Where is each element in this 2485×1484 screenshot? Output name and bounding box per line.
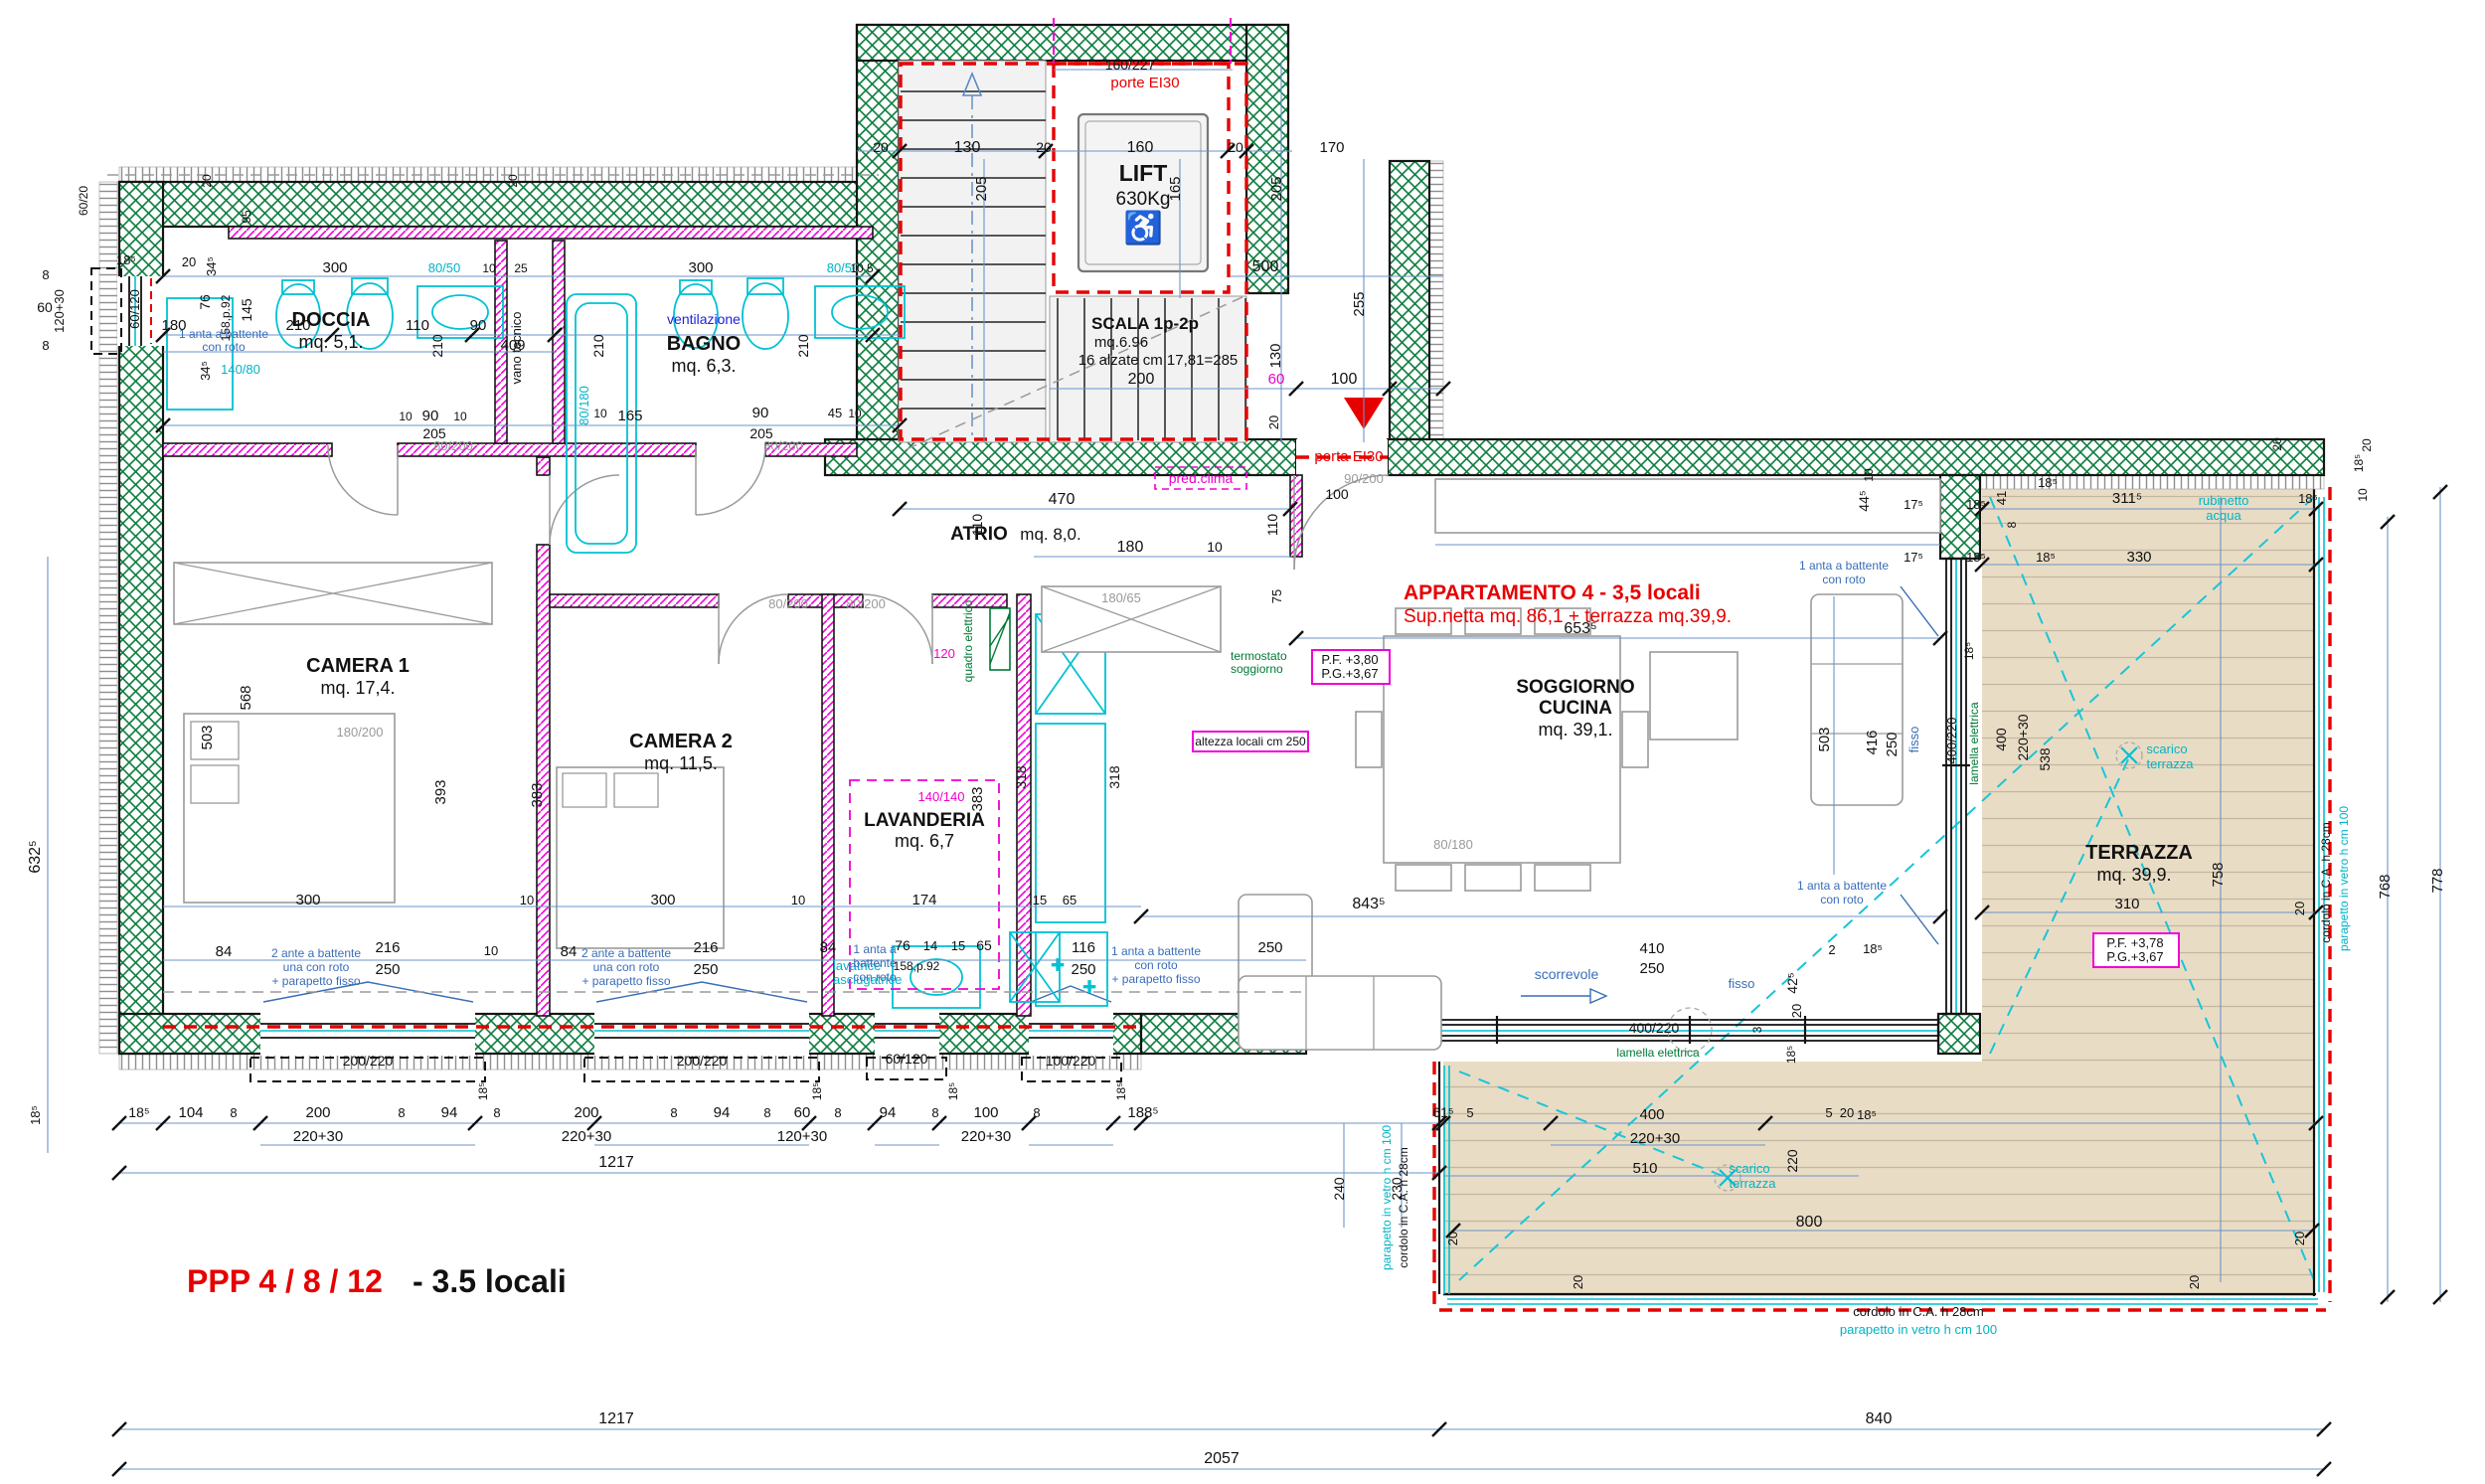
dim-174: 174 — [911, 892, 936, 908]
dim-41: 41 — [1994, 491, 2009, 505]
dim-15-k: 15 — [1033, 893, 1047, 907]
cordolo-l: cordolo in C.A. h 28cm — [1397, 1147, 1410, 1267]
window-200-220-camera1 — [250, 1012, 485, 1081]
dim-185-p3: 18⁵ — [1114, 1082, 1128, 1100]
dim-90-bd: 90 — [752, 405, 769, 421]
dim-210-c: 210 — [285, 317, 310, 334]
room-bagno-mq: mq. 6,3. — [671, 356, 736, 376]
dim-158p92-1: 158,p.92 — [219, 294, 233, 341]
dim-10-x: 10 — [2356, 488, 2370, 502]
dim-175-e1: 17⁵ — [1904, 497, 1923, 512]
note-w1-2: una con roto — [283, 960, 350, 974]
door-leaf-mark — [1901, 586, 1938, 636]
wall-stair-left — [857, 25, 899, 469]
chair — [1465, 865, 1521, 891]
dim-205-s1: 205 — [973, 176, 990, 201]
ch-8g: 8 — [931, 1105, 938, 1120]
dim-393: 393 — [432, 779, 449, 804]
chair — [1622, 712, 1648, 767]
win-60120-lw: 60/120 — [127, 289, 142, 329]
dim-20-c3: 20 — [1571, 1275, 1585, 1289]
dim-205-bd: 205 — [749, 425, 773, 441]
ch-22030b: 220+30 — [562, 1128, 611, 1145]
dim-3115: 311⁵ — [2112, 490, 2142, 507]
dim-5-a: 5 — [1466, 1105, 1473, 1120]
dim-130-v: 130 — [1267, 343, 1284, 368]
dim-20-bt: 20 — [1840, 1105, 1854, 1120]
dim-20-s1: 20 — [873, 139, 889, 155]
pf-terrazza-2: P.G.+3,67 — [2106, 949, 2163, 964]
dim-200-sc: 200 — [1128, 371, 1155, 388]
pf-soggiorno-2: P.G.+3,67 — [1321, 666, 1378, 681]
dim-20-t2: 20 — [506, 174, 520, 188]
room-lavanderia-mq: mq. 6,7 — [895, 831, 954, 851]
door-80200-d: 80/200 — [846, 596, 886, 611]
dim-318-b: 318 — [1106, 765, 1122, 789]
note-w3-3: con roto — [853, 970, 897, 984]
sofa-south — [1239, 976, 1441, 1050]
scarico-2b: terrazza — [1730, 1176, 1777, 1191]
dining-table — [1384, 636, 1620, 863]
dim-220: 220 — [1784, 1149, 1800, 1173]
note-fisso-1: fisso — [1729, 976, 1755, 991]
note-w3-2: battente — [853, 956, 897, 970]
dim-22030-t: 220+30 — [1630, 1130, 1680, 1147]
sofa-east — [1811, 594, 1903, 805]
win-200220-a: 200/220 — [343, 1053, 394, 1069]
room-soggiorno-mq: mq. 39,1. — [1538, 720, 1612, 740]
chair — [1535, 865, 1590, 891]
ch-94b: 94 — [714, 1104, 731, 1121]
dim-185-e2: 18⁵ — [1966, 550, 1986, 565]
pf-soggiorno-1: P.F. +3,80 — [1321, 652, 1378, 667]
apartment-title: APPARTAMENTO 4 - 3,5 locali — [1404, 581, 1701, 604]
dim-20-eg: 20 — [1789, 1004, 1804, 1018]
ch-104: 104 — [178, 1104, 203, 1121]
ch-8d: 8 — [670, 1105, 677, 1120]
room-cucina: CUCINA — [1539, 698, 1612, 719]
dim-503-c1: 503 — [199, 725, 216, 749]
note-w3-1: 1 anta a — [853, 942, 897, 956]
bed-camera2 — [557, 767, 724, 948]
chair — [1396, 865, 1451, 891]
ch-94a: 94 — [441, 1104, 458, 1121]
ch-1885: 188⁵ — [1127, 1104, 1158, 1121]
dim-130-s: 130 — [954, 139, 981, 156]
drawing-title-red: PPP 4 / 8 / 12 — [187, 1263, 383, 1299]
scala-alzate: 16 alzate cm 17,81=285 — [1078, 352, 1239, 369]
dim-345-v1: 34⁵ — [204, 256, 219, 276]
dim-110-c: 110 — [406, 317, 429, 334]
win-100220: 100/220 — [1046, 1053, 1096, 1069]
dim-216-a: 216 — [375, 939, 400, 956]
note-fisso-2: fisso — [1906, 727, 1921, 753]
dim-5-b: 5 — [1825, 1105, 1832, 1120]
dim-6020-lw: 60/20 — [77, 186, 90, 216]
note-w4-2: con roto — [1134, 958, 1178, 972]
dim-180-at: 180 — [1117, 539, 1144, 556]
dim-65-m: 65 — [976, 937, 992, 953]
laundry-sink — [893, 946, 980, 1008]
dim-100-at: 100 — [1325, 486, 1349, 502]
ch-200b: 200 — [574, 1104, 598, 1121]
washbasin-doccia — [417, 286, 503, 338]
ch-200a: 200 — [305, 1104, 330, 1121]
ch-12030: 120+30 — [777, 1128, 827, 1145]
dim-60-mag: 60 — [1268, 371, 1285, 388]
dim-205-s2: 205 — [1268, 176, 1285, 201]
note-ventilazione: ventilazione — [667, 311, 741, 327]
dim-105-b: 10 5 — [850, 261, 874, 275]
dim-510: 510 — [1632, 1160, 1657, 1177]
dim-160-s: 160 — [1127, 139, 1154, 156]
dim-20-s2: 20 — [1036, 139, 1052, 155]
dim-300-c2: 300 — [650, 892, 675, 908]
dim-840: 840 — [1866, 1410, 1893, 1427]
parapetto-r: parapetto in vetro h cm 100 — [2337, 806, 2351, 951]
table-80180: 80/180 — [1433, 837, 1473, 852]
dim-12030-lw: 120+30 — [52, 289, 67, 333]
dim-95-t: 95 — [240, 210, 253, 224]
win-60120-b: 60/120 — [886, 1051, 928, 1067]
dim-10-bt: 10 — [593, 407, 607, 420]
note-e1-1: 1 anta a battente — [1799, 559, 1889, 573]
dim-185-t2: 18⁵ — [2036, 550, 2056, 565]
dim-230: 230 — [1389, 1177, 1405, 1201]
dim-185-l: 18⁵ — [2298, 491, 2318, 506]
window-swing-mark — [1031, 986, 1111, 1002]
dim-2057: 2057 — [1204, 1450, 1240, 1467]
door-leaf-mark — [1901, 895, 1938, 944]
ch-60: 60 — [794, 1104, 811, 1121]
ch-100: 100 — [973, 1104, 998, 1121]
door-arc-camera1 — [550, 475, 619, 545]
fix-80180: 80/180 — [577, 386, 591, 425]
room-camera2-mq: mq. 11,5. — [644, 753, 718, 773]
room-camera2: CAMERA 2 — [629, 731, 733, 752]
scarico-2a: scarico — [1729, 1161, 1769, 1176]
dim-250-c: 250 — [1071, 961, 1095, 978]
ch-8h: 8 — [1033, 1105, 1040, 1120]
dim-10-dd1: 10 — [399, 410, 413, 423]
dim-10-dd2: 10 — [453, 410, 467, 423]
dim-216-b: 216 — [693, 939, 718, 956]
wall-entry-vertical — [1390, 161, 1429, 439]
dim-45-bd: 45 — [828, 406, 842, 420]
dim-76-v: 76 — [197, 294, 213, 310]
dim-20-s3: 20 — [1228, 139, 1243, 155]
pf-terrazza-1: P.F. +3,78 — [2106, 935, 2163, 950]
dim-416: 416 — [1864, 730, 1881, 754]
dim-768: 768 — [2377, 874, 2394, 899]
lift-capacity: 630Kg — [1116, 189, 1171, 210]
note-e1-2: con roto — [1822, 573, 1866, 586]
dim-165-bt: 165 — [617, 408, 642, 424]
dim-758: 758 — [2210, 862, 2227, 887]
lamella-2: lamella elettrica — [1616, 1046, 1700, 1060]
scarico-1b: terrazza — [2147, 756, 2195, 771]
scarico-1a: scarico — [2146, 742, 2187, 756]
altezza-locali: altezza locali cm 250 — [1195, 735, 1306, 748]
dim-400-v: 400 — [1993, 728, 2009, 751]
dim-800: 800 — [1796, 1214, 1823, 1231]
window-100-220-cucina — [1022, 1012, 1121, 1081]
note-e2-1: 1 anta a battente — [1797, 879, 1887, 893]
room-terrazza: TERRAZZA — [2085, 842, 2193, 864]
win-400220: 400/220 — [1629, 1020, 1680, 1036]
dim-110-v1: 110 — [969, 514, 985, 537]
termostato-2: soggiorno — [1231, 662, 1283, 676]
dim-778: 778 — [2429, 868, 2446, 893]
dim-330: 330 — [2126, 549, 2151, 566]
bed-180200: 180/200 — [337, 725, 384, 740]
wall-band — [1429, 161, 1443, 439]
dim-20-t1: 20 — [200, 174, 214, 188]
terrace-deck-lower — [1443, 1062, 2314, 1296]
room-atrio-mq: mq. 8,0. — [1020, 525, 1080, 544]
pred-clima: pred.clima — [1169, 470, 1234, 486]
floor-plan-canvas: ♿ — [0, 0, 2485, 1484]
dim-425: 42⁵ — [1784, 972, 1800, 993]
quadro-elettrico: quadro elettrico — [961, 599, 975, 682]
dim-75: 75 — [1269, 589, 1284, 603]
termostato-1: termostato — [1231, 649, 1287, 663]
dim-145-v: 145 — [239, 298, 254, 322]
rubinetto-2: acqua — [2206, 508, 2241, 523]
dim-1217-b: 1217 — [598, 1410, 634, 1427]
dim-20-sc: 20 — [1266, 415, 1281, 429]
wall-band — [1980, 475, 2324, 489]
dim-10-c1: 10 — [520, 893, 534, 907]
dim-185-j: 18⁵ — [1863, 941, 1883, 956]
wc-icon — [743, 283, 788, 349]
door-80200-c: 80/200 — [768, 596, 808, 611]
dim-250-t: 250 — [1639, 960, 1664, 977]
porte-ei30: porte EI30 — [1110, 75, 1179, 91]
chair — [1356, 712, 1382, 767]
wall-top-left-wing — [119, 182, 873, 227]
door-90200: 90/200 — [1344, 471, 1384, 486]
room-camera1: CAMERA 1 — [306, 655, 410, 677]
dim-383-a: 383 — [529, 782, 546, 807]
dim-185-bl: 18⁵ — [28, 1105, 43, 1125]
dim-568: 568 — [238, 685, 254, 710]
dim-110-v2: 110 — [1264, 514, 1280, 537]
dim-205-dd: 205 — [422, 425, 446, 441]
ch-8b: 8 — [398, 1105, 405, 1120]
note-w2-2: una con roto — [593, 960, 660, 974]
dim-65-k: 65 — [1063, 893, 1077, 907]
fix-14080: 140/80 — [221, 362, 260, 377]
note-w1-3: + parapetto fisso — [271, 974, 360, 988]
scala-name: SCALA 1p-2p — [1091, 314, 1199, 333]
dim-185-k: 18⁵ — [1857, 1107, 1877, 1122]
cordolo-r: cordolo in C.A. h 28cm — [2319, 822, 2333, 942]
dim-300-b: 300 — [688, 259, 713, 276]
cooktop-burner-icon: + — [1052, 952, 1065, 977]
dim-185-w: 18⁵ — [946, 1082, 960, 1100]
dim-100-sc: 100 — [1331, 371, 1358, 388]
parapetto-b: parapetto in vetro h cm 100 — [1840, 1322, 1997, 1337]
dim-310: 310 — [2114, 896, 2139, 912]
dim-300-c1: 300 — [295, 892, 320, 908]
dim-240: 240 — [1331, 1177, 1347, 1201]
room-terrazza-mq: mq. 39,9. — [2096, 865, 2171, 885]
room-camera1-mq: mq. 17,4. — [320, 678, 395, 698]
dim-345-v2: 34⁵ — [198, 361, 213, 381]
ch-8a: 8 — [230, 1105, 237, 1120]
ch-8f: 8 — [834, 1105, 841, 1120]
closet-18065: 180/65 — [1101, 590, 1141, 605]
dim-116: 116 — [1072, 939, 1095, 956]
dim-22030-v: 220+30 — [2015, 714, 2031, 760]
win-400220-v: 400/220 — [1944, 718, 1959, 764]
ch-94c: 94 — [880, 1104, 897, 1121]
lift-label: LIFT — [1119, 160, 1168, 186]
wall-se-pier — [1938, 1014, 1980, 1054]
dim-60-lw: 60 — [37, 299, 53, 315]
room-soggiorno: SOGGIORNO — [1516, 677, 1634, 698]
dim-400-b: 400 — [1639, 1106, 1664, 1123]
ch-8e: 8 — [763, 1105, 770, 1120]
dim-1217-a: 1217 — [598, 1154, 634, 1171]
dim-410: 410 — [1639, 940, 1664, 957]
dim-90-dd: 90 — [422, 408, 439, 424]
dim-185-m: 18⁵ — [2352, 454, 2366, 472]
scala-mq: mq.6.96 — [1094, 334, 1148, 351]
dim-175-e2: 17⁵ — [1904, 550, 1923, 565]
wall-east-pier — [1940, 475, 1980, 559]
wall-stair-right — [1246, 25, 1288, 293]
dim-250-a: 250 — [375, 961, 400, 978]
dim-500: 500 — [1252, 258, 1279, 275]
dim-20-c1: 20 — [1445, 1232, 1460, 1245]
dim-8-lw1: 8 — [42, 267, 49, 282]
dim-185-e1: 18⁵ — [1966, 497, 1986, 512]
dim-10-e: 10 — [1862, 468, 1876, 482]
wall-band — [99, 182, 117, 1054]
dim-470: 470 — [1049, 491, 1076, 508]
dim-20-lw: 20 — [182, 254, 196, 269]
vano-tecnico: vano tecnico — [509, 312, 524, 385]
lav-140140: 140/140 — [918, 789, 965, 804]
dim-10-d: 10 — [482, 261, 496, 275]
ch-22030c: 220+30 — [961, 1128, 1011, 1145]
dim-2-s: 2 — [1828, 942, 1835, 957]
side-table — [1650, 652, 1738, 740]
dim-25-d: 25 — [514, 261, 528, 275]
dim-10-wa: 10 — [484, 943, 498, 958]
note-scorrevole: scorrevole — [1535, 966, 1599, 982]
wall-stair-top — [857, 25, 1288, 61]
dim-3-r: 3 — [1750, 1026, 1764, 1033]
dim-185-lw: 18⁵ — [116, 252, 136, 267]
dim-14-b: 14 — [923, 938, 937, 953]
dim-185-n: 18⁵ — [1962, 642, 1976, 660]
rubinetto-1: rubinetto — [2199, 493, 2249, 508]
dim-538: 538 — [2037, 747, 2053, 771]
dim-503-s: 503 — [1816, 727, 1833, 751]
dim-76-b: 76 — [895, 937, 911, 953]
lav-120-mag: 120 — [933, 646, 955, 661]
dim-15-m: 15 — [951, 938, 965, 953]
drawing-title-black: - 3.5 locali — [413, 1263, 567, 1299]
dim-185-t1: 18⁵ — [2038, 475, 2058, 490]
dim-185-i: 18⁵ — [1784, 1046, 1798, 1064]
dim-445: 44⁵ — [1856, 490, 1872, 511]
glazing-east — [1901, 559, 1970, 1014]
door-arc-doccia — [328, 445, 398, 515]
ch-8c: 8 — [493, 1105, 500, 1120]
dim-632: 632⁵ — [27, 840, 44, 873]
win-200220-b: 200/220 — [677, 1053, 728, 1069]
wall-band — [119, 1054, 1141, 1070]
dim-180-c: 180 — [161, 317, 186, 334]
dim-20-tr: 20 — [2292, 902, 2307, 915]
dim-210-v1: 210 — [429, 334, 445, 358]
dim-250-b: 250 — [693, 961, 718, 978]
room-bagno: BAGNO — [667, 333, 741, 355]
dim-8-t: 8 — [2005, 521, 2019, 528]
dim-160227: 160/227 — [1105, 57, 1156, 73]
note-w4-1: 1 anta a battente — [1111, 944, 1201, 958]
room-doccia-mq: mq. 5,1. — [298, 332, 363, 352]
dim-165-s: 165 — [1167, 176, 1184, 201]
dim-210-v2: 210 — [590, 334, 606, 358]
dim-300-d: 300 — [322, 259, 347, 276]
room-lavanderia: LAVANDERIA — [864, 810, 985, 831]
dim-84-a: 84 — [216, 943, 233, 960]
dim-8-lw2: 8 — [42, 338, 49, 353]
note-w4-3: + parapetto fisso — [1111, 972, 1200, 986]
ch-22030a: 220+30 — [293, 1128, 343, 1145]
dim-158p92-2: 158,p.92 — [894, 959, 940, 973]
note-w2-3: + parapetto fisso — [581, 974, 670, 988]
note-w1-1: 2 ante a battente — [271, 946, 361, 960]
slider-arrow-icon — [1521, 989, 1606, 1003]
dim-10-bd: 10 — [848, 407, 862, 420]
dim-90-c: 90 — [470, 317, 487, 334]
porta-ei30: porta EI30 — [1314, 448, 1383, 465]
ch-185: 18⁵ — [128, 1104, 149, 1120]
dim-20-x2: 20 — [2360, 438, 2374, 452]
dim-170: 170 — [1319, 139, 1344, 156]
wall-soggiorno-top — [1388, 439, 2324, 475]
note-w2-1: 2 ante a battente — [581, 946, 671, 960]
dim-210-v3: 210 — [795, 334, 811, 358]
window-200-220-camera2 — [584, 1012, 819, 1081]
dim-843: 843⁵ — [1352, 896, 1385, 912]
fix-8050-a: 80/50 — [428, 260, 461, 275]
dim-84-b: 84 — [561, 943, 578, 960]
door-arc-bagno — [696, 445, 765, 515]
note-e2-2: con roto — [1820, 893, 1864, 907]
dim-250-s: 250 — [1884, 732, 1901, 756]
dim-20-c4: 20 — [2187, 1275, 2202, 1289]
dim-383-b: 383 — [969, 786, 986, 811]
dim-615: 61⁵ — [1432, 1104, 1453, 1120]
dim-185-p2: 18⁵ — [810, 1082, 824, 1100]
dim-250-d: 250 — [1257, 939, 1282, 956]
lamella-1: lamella elettrica — [1967, 702, 1981, 785]
dim-20-x1: 20 — [2270, 437, 2284, 451]
dim-84-c: 84 — [820, 939, 837, 956]
dim-653: 653⁵ — [1564, 620, 1596, 637]
dim-10-c2: 10 — [791, 893, 805, 907]
dim-20-c2: 20 — [2292, 1232, 2307, 1245]
dim-255: 255 — [1351, 291, 1368, 316]
dim-318-a: 318 — [1013, 765, 1029, 789]
